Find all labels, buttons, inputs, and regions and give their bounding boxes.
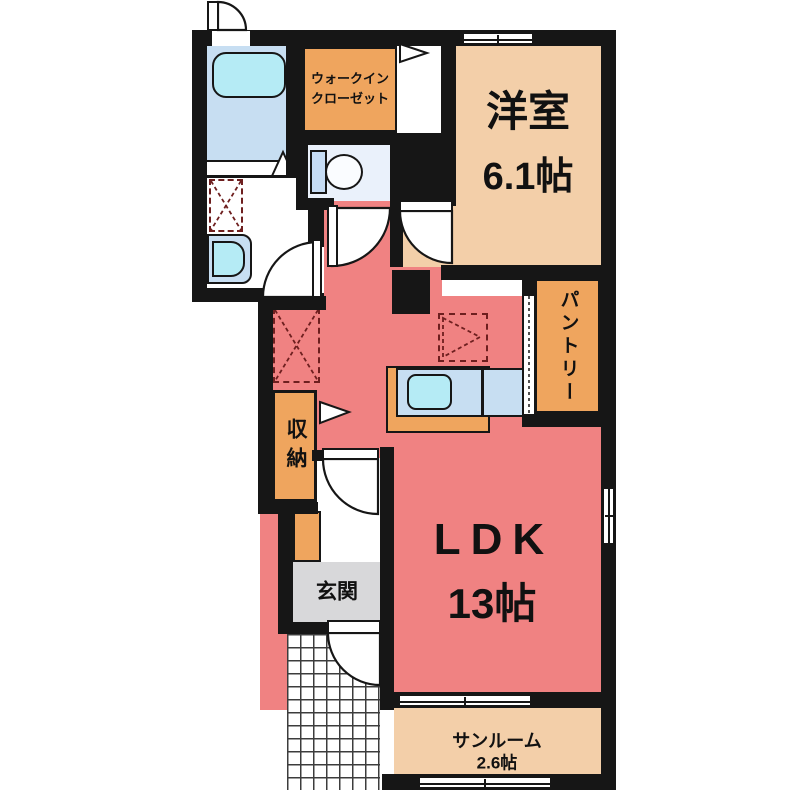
ldk-size: 13帖 (448, 581, 537, 627)
wall (601, 30, 616, 790)
washroom-door-swing (260, 238, 322, 302)
sunroom-size: 2.6帖 (477, 755, 518, 774)
sunroom-window (418, 776, 552, 789)
wall (192, 288, 264, 302)
ldk-hall-door-swing (320, 446, 382, 516)
wall (380, 447, 394, 710)
pantry-opening (524, 296, 534, 414)
wall (278, 514, 293, 634)
wall (522, 412, 602, 427)
western-room-size: 6.1帖 (483, 157, 574, 199)
wall (192, 30, 207, 302)
washing-machine-space-icon (209, 179, 243, 232)
wall (441, 46, 456, 206)
floor-plan: 洋室 6.1帖 LDK 13帖 サンルーム 2.6帖 ウォークイン クローゼット… (0, 0, 800, 800)
entrance-label: 玄関 (316, 580, 358, 603)
walkin-closet-label-line1: ウォークイン (311, 72, 389, 86)
sunroom-label: サンルーム (452, 732, 541, 752)
ldk-label: LDK (434, 516, 554, 564)
wall (258, 300, 273, 502)
wall (392, 270, 430, 314)
western-room-label: 洋室 (486, 89, 570, 135)
sunroom-window (398, 694, 532, 707)
wall (296, 143, 308, 202)
exterior-door-swing (204, 0, 252, 34)
window (462, 32, 534, 45)
entrance-door-swing (322, 618, 382, 692)
kitchen-sink-icon (407, 374, 452, 410)
vanity-bowl-icon (212, 241, 245, 277)
closet-door-triangle-icon (398, 42, 430, 66)
toilet-door-swing (328, 202, 396, 270)
wall (258, 502, 318, 514)
storage-label: 収納 (280, 418, 310, 476)
storage-door-triangle-icon (318, 398, 352, 426)
walk-in-closet-floor (302, 46, 398, 133)
toilet-bowl-icon (325, 154, 363, 190)
shoe-cabinet (293, 511, 321, 562)
pantry-label: パントリー (555, 290, 582, 405)
window (602, 487, 615, 545)
bathtub-icon (212, 52, 286, 98)
walkin-closet-label-line2: クローゼット (311, 92, 389, 106)
refrigerator-space-icon (438, 313, 488, 362)
appliance-space-icon (273, 308, 320, 383)
wall (441, 265, 601, 280)
western-room-door-swing (398, 198, 458, 266)
kitchen-counter-divider (481, 369, 484, 416)
